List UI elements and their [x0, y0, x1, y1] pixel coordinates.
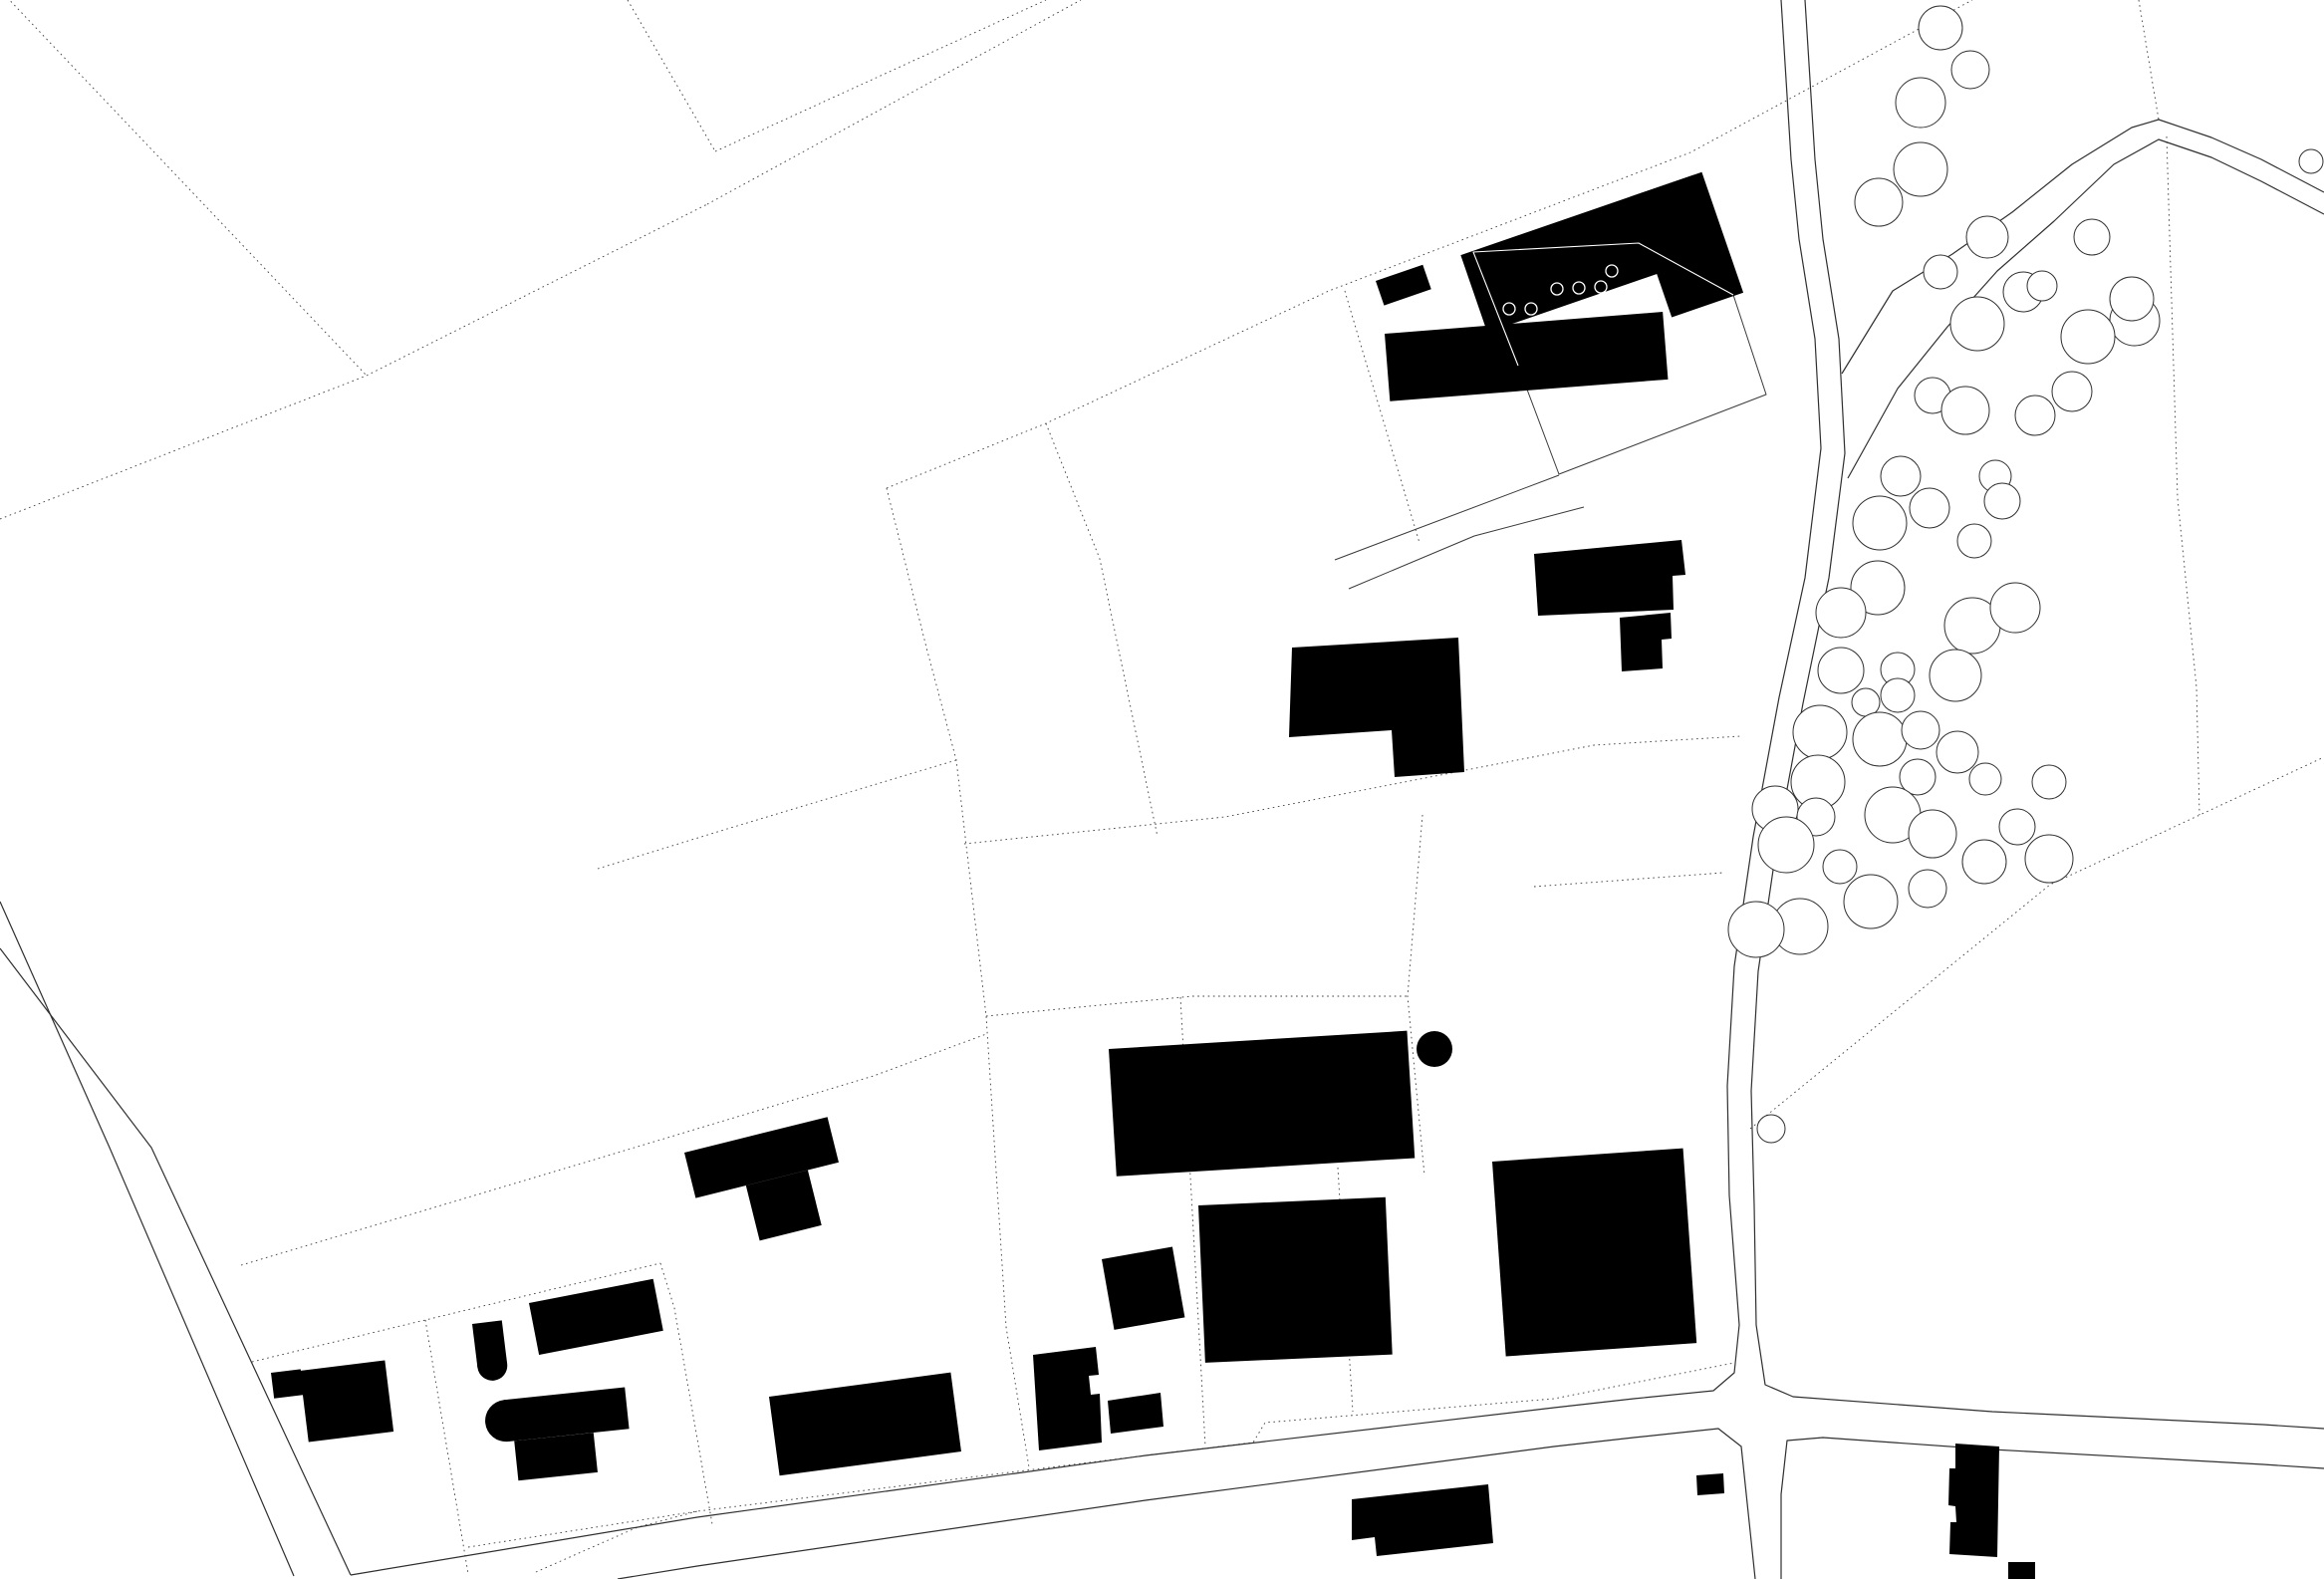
tree-icon — [1902, 711, 1939, 749]
parcel-boundary-line — [468, 1363, 1734, 1547]
tree-icon — [1950, 297, 2004, 351]
tree-icon — [1984, 483, 2020, 519]
building — [529, 1279, 663, 1355]
buildings — [271, 172, 2035, 1579]
parcel-boundary-line — [536, 1511, 697, 1572]
tree-icon — [1853, 712, 1907, 766]
tree-icon — [1853, 496, 1907, 550]
tree-icon — [1969, 763, 2001, 795]
tree-icon — [2025, 835, 2073, 883]
building — [1385, 312, 1668, 401]
tree-icon — [1896, 78, 1945, 128]
tree-icon — [2299, 149, 2323, 173]
parcel-boundary-line — [425, 1320, 468, 1574]
point-features — [1417, 1031, 1452, 1067]
tree-icon — [1881, 456, 1921, 496]
parcel-boundary-line — [2167, 136, 2199, 815]
tree-icon — [1930, 650, 1981, 701]
tree-icon — [1962, 840, 2006, 884]
tree-icon — [2061, 310, 2115, 364]
tree-icon — [1941, 387, 1989, 434]
tree-icon — [1910, 488, 1949, 528]
building — [769, 1373, 961, 1476]
tree-icon — [2015, 395, 2055, 435]
building — [1948, 1444, 1999, 1557]
tree-icon — [1844, 875, 1898, 928]
tree-icon — [1924, 255, 1957, 289]
building — [271, 1369, 304, 1398]
tree-icon — [2052, 372, 2092, 411]
parcel-boundary-line — [715, 0, 1046, 151]
parcel-boundary-line — [1046, 423, 1158, 837]
tree-icon — [1990, 583, 2040, 633]
tree-icon — [1937, 731, 1978, 773]
tree-icon — [1909, 870, 1946, 908]
tree-icon — [1966, 216, 2008, 258]
road-edge — [1781, 1438, 2324, 1579]
tree-icon — [1823, 850, 1857, 884]
building — [1376, 265, 1431, 306]
tree-icon — [2074, 219, 2110, 255]
building — [1492, 1149, 1696, 1357]
tree-icon — [1855, 178, 1903, 226]
building — [1102, 1246, 1184, 1329]
tree-icon — [1757, 1115, 1785, 1143]
tree-icon — [1818, 648, 1864, 693]
parcel-boundary-line — [887, 488, 1029, 1467]
building — [1108, 1393, 1163, 1434]
parcel-boundary-line — [0, 0, 367, 376]
tree-icon — [1919, 6, 1962, 50]
tree-icon — [1909, 810, 1956, 858]
tree-dot — [1417, 1031, 1452, 1067]
parcel-boundary-line — [1534, 873, 1723, 887]
tree-icon — [2027, 271, 2057, 301]
parcel-boundary-line — [241, 1034, 986, 1265]
parcel-boundary-line — [628, 0, 715, 151]
tree-icon — [1793, 705, 1847, 759]
building — [514, 1433, 598, 1480]
building — [1534, 540, 1685, 616]
site-plan — [0, 0, 2324, 1579]
building — [1198, 1197, 1393, 1363]
tree-icon — [1758, 817, 1814, 873]
building — [1696, 1473, 1724, 1495]
parcel-boundary-line — [598, 760, 956, 869]
tree-icon — [1852, 688, 1880, 716]
building — [1631, 172, 1744, 318]
building — [300, 1361, 393, 1443]
building — [1033, 1347, 1102, 1450]
road-edge — [0, 902, 294, 1576]
building — [2008, 1562, 2035, 1579]
site-plan-stage — [0, 0, 2324, 1579]
tree-icon — [1951, 51, 1989, 89]
tree-icon — [2032, 765, 2066, 799]
building — [1289, 638, 1464, 777]
parcel-boundary-line — [964, 736, 1740, 844]
trees — [1728, 6, 2323, 1143]
building — [1352, 1484, 1493, 1556]
tree-icon — [1957, 524, 1991, 558]
building — [1620, 613, 1672, 671]
building — [1109, 1031, 1415, 1177]
parcel-boundary-line — [707, 0, 1081, 204]
tree-icon — [1816, 588, 1866, 638]
parcel-boundary-line — [1750, 757, 2324, 1129]
tree-icon — [1881, 678, 1915, 712]
tree-icon — [1894, 142, 1947, 196]
tree-icon — [2110, 277, 2154, 321]
road-edge — [0, 948, 351, 1575]
tree-icon — [1728, 902, 1784, 957]
parcel-boundary-line — [986, 996, 1408, 1016]
parcel-boundary-line — [1345, 291, 1420, 543]
parcel-boundary-line — [2139, 0, 2159, 120]
parcel-boundary-line — [660, 1263, 712, 1524]
tree-icon — [1999, 809, 2035, 845]
